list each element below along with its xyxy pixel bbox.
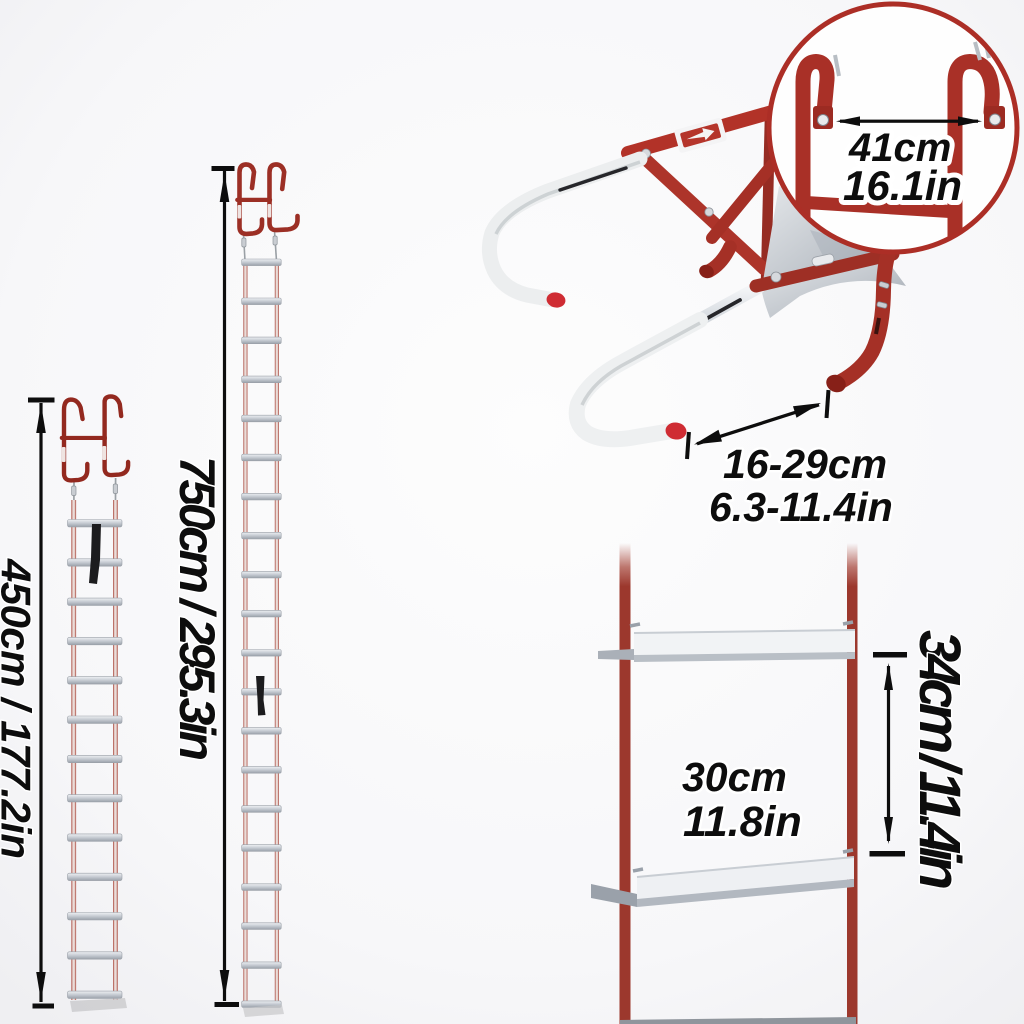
svg-text:450cm / 177.2in: 450cm / 177.2in (0, 558, 40, 859)
svg-text:34cm / 11.4in: 34cm / 11.4in (907, 630, 972, 890)
svg-text:11.8in: 11.8in (683, 798, 802, 846)
svg-text:16-29cm: 16-29cm (723, 441, 887, 487)
svg-text:16.1in: 16.1in (843, 162, 962, 209)
svg-text:750cm / 295.3in: 750cm / 295.3in (169, 456, 225, 761)
svg-text:6.3-11.4in: 6.3-11.4in (709, 484, 893, 530)
svg-text:30cm: 30cm (682, 754, 787, 800)
